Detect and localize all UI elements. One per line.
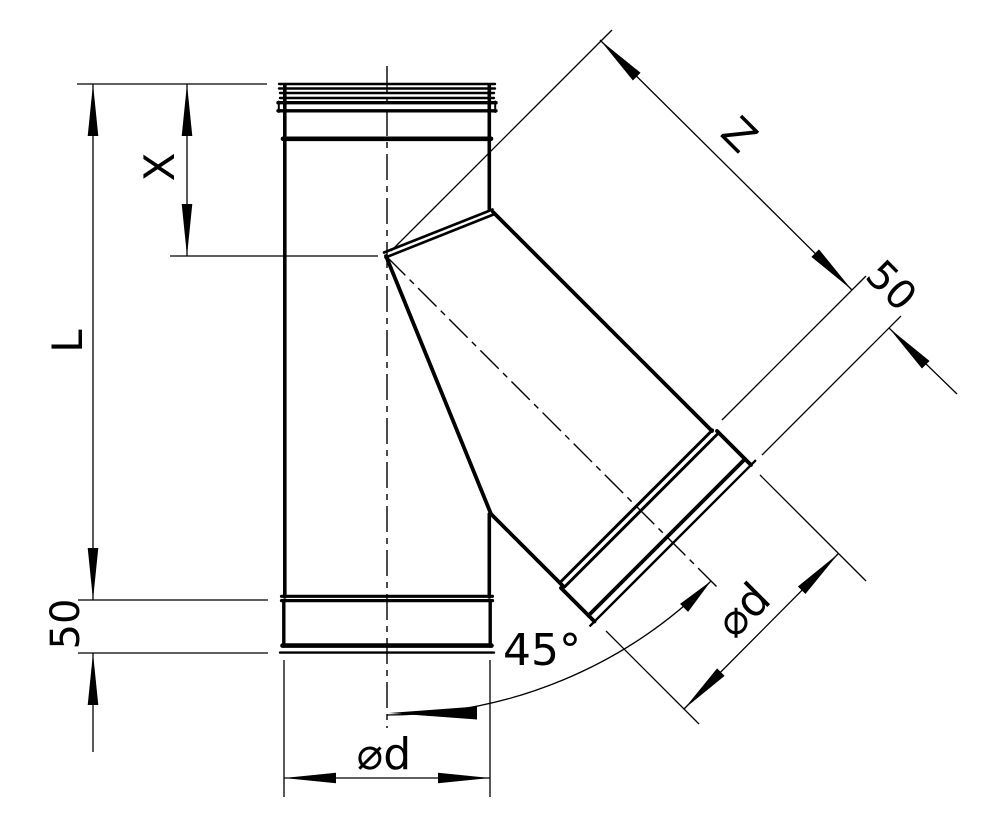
arrowhead: [684, 668, 725, 709]
branch-lower-edge: [491, 514, 563, 586]
branch-collar-inner: [386, 215, 494, 258]
arrowhead: [811, 249, 852, 290]
dim-label-branch-angle: 45°: [503, 625, 581, 676]
arrowhead: [88, 653, 99, 705]
drawing-canvas: X L 50 Z 50 ⌀d 45° ⌀d: [0, 0, 1000, 829]
ext-branch-dia-lower: [606, 631, 699, 724]
arrowhead: [600, 40, 641, 81]
dim-label-main-socket-depth: 50: [43, 599, 89, 650]
dim-line-Z: [600, 40, 852, 290]
ext-branch-dia-upper: [760, 475, 866, 581]
branch-collar-outer: [384, 210, 493, 253]
arrowhead: [889, 328, 930, 369]
arrowhead: [88, 548, 99, 600]
ext-branch-end: [762, 316, 901, 455]
dimension-labels: X L 50 Z 50 ⌀d 45° ⌀d: [43, 107, 925, 780]
dim-label-branch-length: Z: [712, 107, 767, 162]
tee-fitting-technical-drawing: X L 50 Z 50 ⌀d 45° ⌀d: [0, 0, 1000, 829]
dim-label-main-diameter: ⌀d: [357, 729, 411, 780]
arrowhead: [182, 204, 193, 256]
dim-label-branch-socket-depth: 50: [857, 252, 926, 321]
arrowhead: [680, 581, 711, 612]
arrowhead: [182, 84, 193, 136]
arrowhead: [88, 84, 99, 136]
arrowhead: [284, 773, 336, 784]
arrowhead: [389, 707, 477, 720]
branch-saddle-line: [386, 256, 491, 514]
ext-branch-bead: [722, 276, 866, 420]
dim-label-branch-diameter: ⌀d: [706, 573, 781, 648]
arrowhead: [438, 773, 490, 784]
dim-label-x-inset: X: [135, 153, 184, 182]
branch-centerline: [387, 257, 719, 589]
branch-outline: [384, 210, 755, 626]
arrowhead: [798, 554, 839, 595]
branch-upper-edge: [493, 212, 712, 431]
dim-label-overall-length: L: [43, 329, 92, 353]
